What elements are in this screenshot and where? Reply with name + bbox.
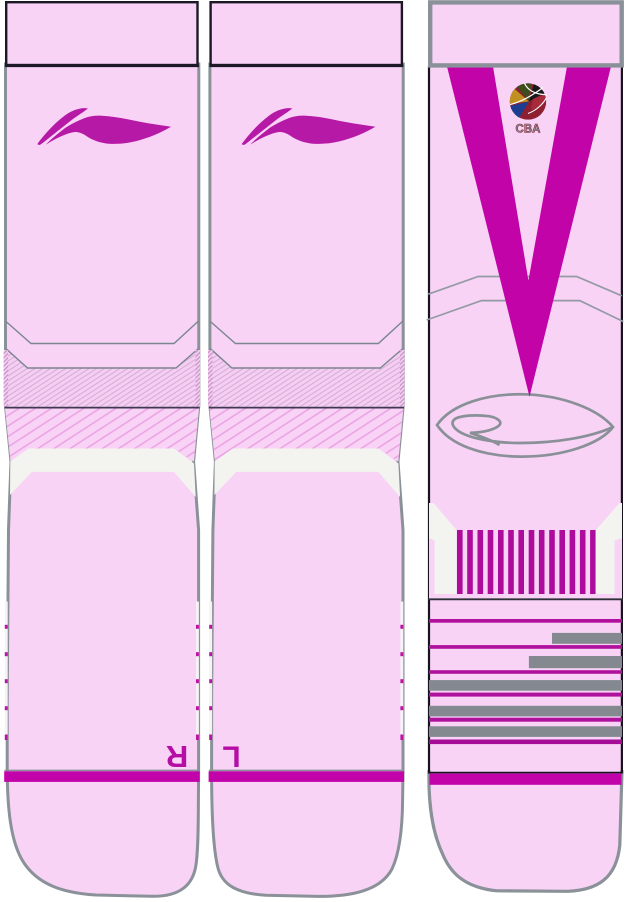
svg-text:L: L <box>222 740 240 773</box>
svg-text:R: R <box>166 739 188 774</box>
svg-text:CBA: CBA <box>516 123 541 135</box>
